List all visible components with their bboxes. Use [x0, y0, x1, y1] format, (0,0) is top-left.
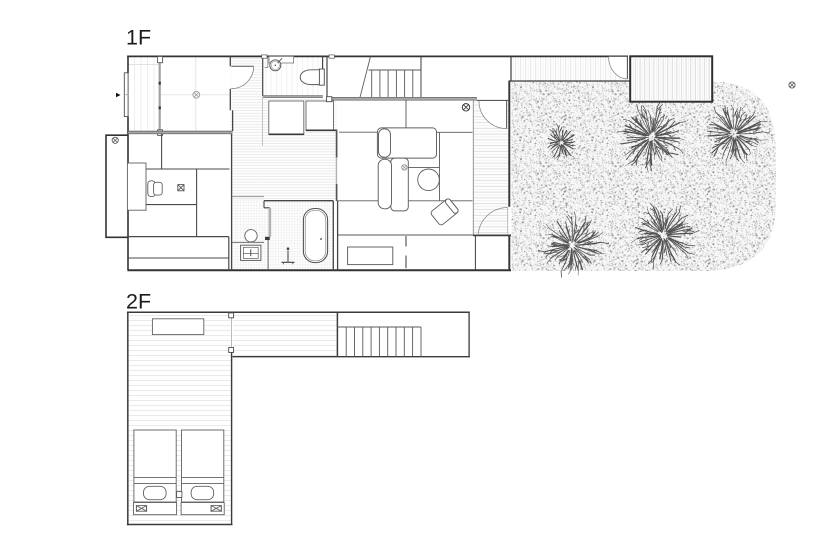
svg-text:1F: 1F: [126, 26, 151, 50]
svg-text:2F: 2F: [126, 290, 151, 314]
